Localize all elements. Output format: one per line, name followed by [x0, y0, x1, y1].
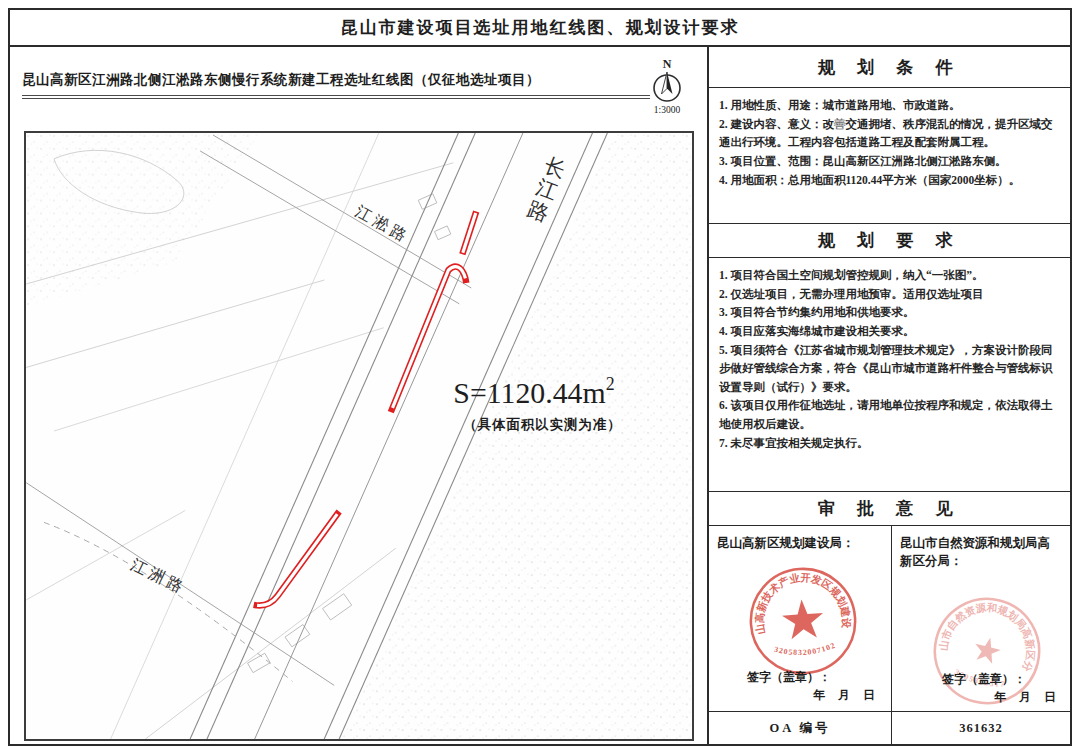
agency-name-left: 昆山高新区规划建设局： — [709, 526, 891, 552]
map-title: 昆山高新区江洲路北侧江淞路东侧慢行系统新建工程选址红线图（仅征地选址项目） — [22, 71, 650, 99]
page-title: 昆山市建设项目选址用地红线图、规划设计要求 — [341, 16, 740, 39]
area-label: S=1120.44m2 — [453, 374, 614, 409]
seal-star-left — [781, 598, 825, 640]
sheet-border: 昆山市建设项目选址用地红线图、规划设计要求 昆山高新区江洲路北侧江淞路东侧慢行系… — [8, 8, 1072, 746]
seal-star-right — [972, 634, 1003, 664]
road-label-jiangsong: 江淞路 — [353, 202, 413, 246]
section-approval-body: 昆山高新区规划建设局： 昆山高新技术产业开发区规划建设局 32058320071… — [709, 526, 1070, 712]
requirements-panel: 规 划 条 件 1. 用地性质、用途：城市道路用地、市政道路。 2. 建设内容、… — [707, 47, 1070, 744]
road-label-jiangzhou: 江洲路 — [128, 556, 189, 597]
area-superscript: 2 — [606, 374, 615, 394]
section-planning-requirements-body: 1. 项目符合国土空间规划管控规则，纳入“一张图”。 2. 仅选址项目，无需办理… — [709, 258, 1070, 492]
north-arrow: N 1:3000 — [645, 57, 689, 121]
requirement-item: 6. 该项目仅用作征地选址，请用地单位按程序和规定，依法取得土地使用权后建设。 — [719, 396, 1060, 433]
site-map: 长江路 江淞路 江洲路 S=1120.44m2 （具体面积以实测为准） — [26, 133, 692, 739]
requirement-item: 3. 项目符合节约集约用地和供地要求。 — [719, 303, 1060, 322]
footer-row: OA 编号 361632 — [709, 712, 1070, 744]
sign-label-right: 签字（盖章）： — [942, 670, 1026, 689]
area-value: S=1120.44m — [453, 376, 605, 409]
area-note: （具体面积以实测为准） — [463, 417, 621, 432]
site-map-frame: 长江路 江淞路 江洲路 S=1120.44m2 （具体面积以实测为准） — [24, 131, 694, 741]
condition-item: 1. 用地性质、用途：城市道路用地、市政道路。 — [719, 96, 1060, 115]
section-planning-conditions-header: 规 划 条 件 — [709, 47, 1070, 88]
map-background — [26, 133, 692, 739]
sign-label-left: 签字（盖章）： — [747, 668, 831, 687]
oa-number-label: OA 编号 — [709, 712, 892, 744]
condition-item: 2. 建设内容、意义：改善交通拥堵、秩序混乱的情况，提升区域交通出行环境。工程内… — [719, 115, 1060, 152]
svg-text:昆山市自然资源和规划局高新区分局: 昆山市自然资源和规划局高新区分局 — [936, 592, 1046, 674]
requirement-item: 5. 项目须符合《江苏省城市规划管理技术规定》，方案设计阶段同步做好管线综合方案… — [719, 341, 1060, 397]
road-label-changjiang: 长江路 — [524, 153, 569, 227]
condition-item: 4. 用地面积：总用地面积1120.44平方米（国家2000坐标）。 — [719, 171, 1060, 190]
seal-text-right: 昆山市自然资源和规划局高新区分局 — [936, 592, 1046, 674]
section-planning-requirements-header: 规 划 要 求 — [709, 224, 1070, 258]
requirement-item: 7. 未尽事宜按相关规定执行。 — [719, 434, 1060, 453]
date-label-left: 年 月 日 — [813, 686, 875, 705]
requirement-item: 2. 仅选址项目，无需办理用地预审。适用仅选址项目 — [719, 285, 1060, 304]
official-seal-left: 昆山高新技术产业开发区规划建设局 3205832007102 — [744, 562, 862, 680]
seal-text-left: 昆山高新技术产业开发区规划建设局 — [750, 568, 853, 636]
requirement-item: 1. 项目符合国土空间规划管控规则，纳入“一张图”。 — [719, 266, 1060, 285]
section-planning-conditions-body: 1. 用地性质、用途：城市道路用地、市政道路。 2. 建设内容、意义：改善交通拥… — [709, 88, 1070, 224]
requirement-item: 4. 项目应落实海绵城市建设相关要求。 — [719, 322, 1060, 341]
approval-left-column: 昆山高新区规划建设局： 昆山高新技术产业开发区规划建设局 32058320071… — [709, 526, 892, 711]
sheet-header: 昆山市建设项目选址用地红线图、规划设计要求 — [10, 10, 1070, 47]
seal-number-left: 3205832007102 — [773, 640, 838, 659]
north-arrow-icon: N 1:3000 — [645, 57, 689, 117]
svg-text:昆山高新技术产业开发区规划建设局: 昆山高新技术产业开发区规划建设局 — [750, 568, 853, 636]
north-label: N — [663, 57, 672, 71]
section-approval-header: 审 批 意 见 — [709, 492, 1070, 526]
condition-item: 3. 项目位置、范围：昆山高新区江洲路北侧江淞路东侧。 — [719, 152, 1060, 171]
map-panel: 昆山高新区江洲路北侧江淞路东侧慢行系统新建工程选址红线图（仅征地选址项目） N … — [10, 47, 707, 744]
oa-number-value: 361632 — [892, 712, 1070, 744]
sheet-page: 昆山市建设项目选址用地红线图、规划设计要求 昆山高新区江洲路北侧江淞路东侧慢行系… — [0, 0, 1080, 754]
approval-right-column: 昆山市自然资源和规划局高新区分局： 昆山市自然资源和规划局高新区分局 32058… — [892, 526, 1070, 711]
date-label-right: 年 月 日 — [994, 688, 1056, 707]
agency-name-right: 昆山市自然资源和规划局高新区分局： — [892, 526, 1070, 570]
svg-text:3205832007102: 3205832007102 — [773, 640, 838, 659]
map-scale: 1:3000 — [654, 105, 681, 115]
